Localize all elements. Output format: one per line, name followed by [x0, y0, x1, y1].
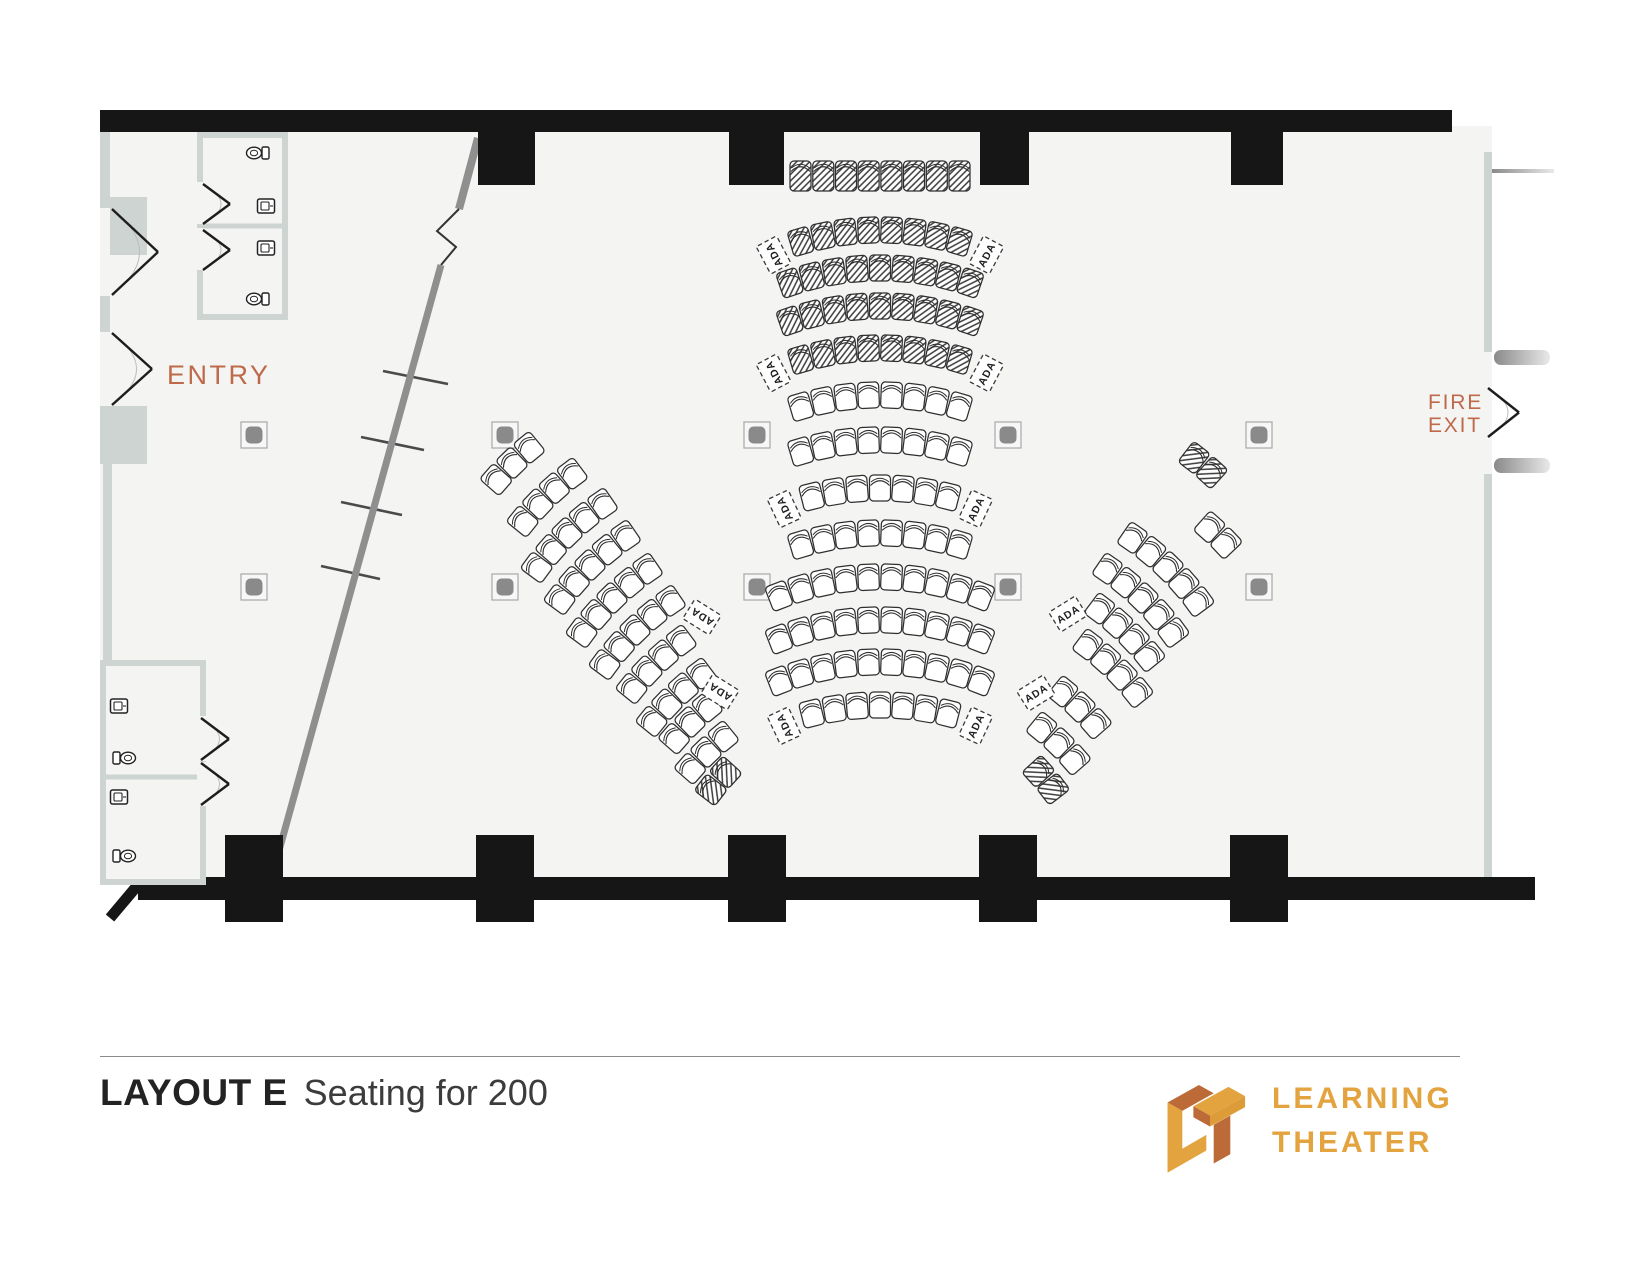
fire-exit-line2: EXIT — [1428, 414, 1483, 437]
reserved-seat-icon — [857, 335, 879, 362]
reserved-seat-icon — [810, 339, 836, 369]
reserved-seat-icon — [870, 255, 891, 281]
floor-plan-page: ADAADAADAADAADAADAADAADAADAADAADAADA ENT… — [0, 0, 1650, 1275]
seat-icon — [870, 692, 891, 718]
seat-icon — [857, 520, 879, 547]
seat-icon — [902, 383, 926, 411]
seat-icon — [902, 428, 926, 456]
reserved-seat-icon — [790, 161, 811, 191]
seat-icon — [834, 383, 858, 411]
reserved-seat-icon — [881, 161, 902, 191]
layout-name: LAYOUT E — [100, 1072, 288, 1113]
reserved-seat-icon — [880, 335, 902, 362]
seat-icon — [846, 692, 869, 720]
toilet-icon — [247, 147, 270, 159]
toilet-icon — [247, 293, 270, 305]
seat-icon — [857, 427, 879, 454]
fire-exit-line1: FIRE — [1428, 391, 1483, 414]
reserved-seat-icon — [924, 339, 950, 369]
seat-icon — [891, 692, 914, 720]
seat-icon — [810, 653, 836, 683]
reserved-seat-icon — [822, 257, 847, 286]
reserved-seat-icon — [870, 293, 891, 319]
reserved-seat-icon — [858, 161, 879, 191]
reserved-seat-icon — [891, 255, 914, 283]
seat-icon — [891, 475, 914, 503]
sink-icon — [111, 699, 128, 713]
toilet-icon — [113, 850, 136, 862]
seat-icon — [902, 608, 926, 636]
reserved-seat-icon — [902, 336, 926, 364]
seat-icon — [902, 650, 926, 678]
seat-icon — [880, 382, 902, 409]
reserved-seat-icon — [813, 161, 834, 191]
reserved-seat-icon — [846, 255, 869, 283]
sink-icon — [258, 199, 275, 213]
seat-icon — [924, 568, 950, 598]
reserved-seat-icon — [857, 217, 879, 244]
seat-icon — [822, 694, 847, 723]
seat-icon — [810, 524, 836, 554]
seat-icon — [880, 649, 902, 676]
seat-icon — [834, 565, 858, 593]
reserved-seat-icon — [846, 293, 869, 321]
fire-exit-label: FIRE EXIT — [1428, 391, 1483, 437]
seat-icon — [880, 427, 902, 454]
seat-icon — [810, 611, 836, 641]
seat-icon — [834, 608, 858, 636]
footer-divider — [100, 1056, 1460, 1057]
logo-wordmark: LEARNING THEATER — [1272, 1077, 1453, 1165]
seat-icon — [924, 386, 950, 416]
seat-icon — [880, 607, 902, 634]
reserved-seat-icon — [822, 295, 847, 324]
seat-icon — [913, 694, 938, 723]
seat-icon — [810, 568, 836, 598]
layout-title: LAYOUT ESeating for 200 — [100, 1072, 548, 1114]
reserved-seat-icon — [924, 221, 950, 251]
reserved-seat-icon — [926, 161, 947, 191]
seat-icon — [834, 521, 858, 549]
reserved-seat-icon — [902, 218, 926, 246]
seat-icon — [913, 477, 938, 506]
reserved-seat-icon — [810, 221, 836, 251]
seat-icon — [880, 564, 902, 591]
logo-line1: LEARNING — [1272, 1077, 1453, 1121]
seat-icon — [846, 475, 869, 503]
reserved-seat-icon — [913, 257, 938, 286]
toilet-icon — [113, 752, 136, 764]
seat-icon — [870, 475, 891, 501]
reserved-seat-icon — [904, 161, 925, 191]
reserved-seat-icon — [891, 293, 914, 321]
layout-subtitle: Seating for 200 — [304, 1072, 548, 1113]
seat-icon — [857, 564, 879, 591]
lt-logo-icon — [1162, 1068, 1258, 1174]
reserved-seat-icon — [880, 217, 902, 244]
seat-icon — [902, 565, 926, 593]
logo-line2: THEATER — [1272, 1121, 1453, 1165]
seat-icon — [834, 650, 858, 678]
reserved-seat-icon — [834, 218, 858, 246]
reserved-seat-icon — [836, 161, 857, 191]
seat-icon — [880, 520, 902, 547]
reserved-seat-icon — [834, 336, 858, 364]
seat-icon — [902, 521, 926, 549]
reserved-seat-icon — [949, 161, 970, 191]
sink-icon — [258, 241, 275, 255]
seat-icon — [924, 611, 950, 641]
reserved-seat-icon — [913, 295, 938, 324]
seat-icon — [857, 382, 879, 409]
seat-icon — [924, 653, 950, 683]
seat-icon — [924, 524, 950, 554]
sink-icon — [111, 790, 128, 804]
seat-icon — [924, 431, 950, 461]
seat-icon — [857, 607, 879, 634]
entry-label: ENTRY — [167, 360, 271, 391]
learning-theater-logo: LEARNING THEATER — [1162, 1068, 1453, 1174]
seat-icon — [822, 477, 847, 506]
seat-icon — [834, 428, 858, 456]
seat-icon — [810, 386, 836, 416]
seat-icon — [810, 431, 836, 461]
seat-icon — [857, 649, 879, 676]
